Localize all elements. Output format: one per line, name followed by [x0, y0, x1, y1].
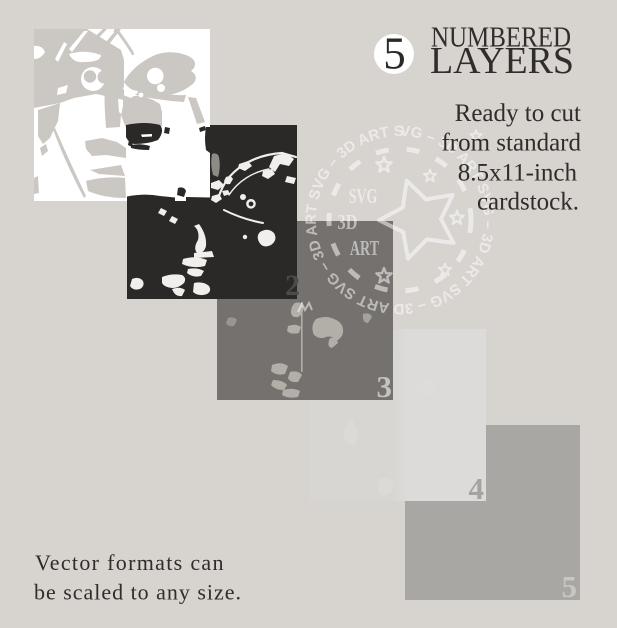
svg-text:Vector formats can: Vector formats can: [35, 550, 224, 575]
svg-text:be scaled to any size.: be scaled to any size.: [34, 580, 241, 605]
svg-text:2: 2: [285, 269, 300, 302]
svg-text:3: 3: [377, 369, 393, 404]
svg-text:5: 5: [562, 569, 578, 604]
svg-text:ART: ART: [350, 236, 379, 259]
svg-text:SVG: SVG: [349, 184, 378, 208]
svg-text:from standard: from standard: [441, 130, 581, 157]
svg-text:Ready to cut: Ready to cut: [455, 100, 581, 127]
svg-text:8.5x11-inch: 8.5x11-inch: [458, 160, 578, 187]
svg-text:LAYERS: LAYERS: [430, 40, 574, 82]
svg-text:5: 5: [383, 29, 406, 79]
svg-text:3D: 3D: [337, 211, 357, 234]
svg-text:cardstock.: cardstock.: [477, 189, 579, 216]
svg-text:4: 4: [469, 471, 485, 506]
